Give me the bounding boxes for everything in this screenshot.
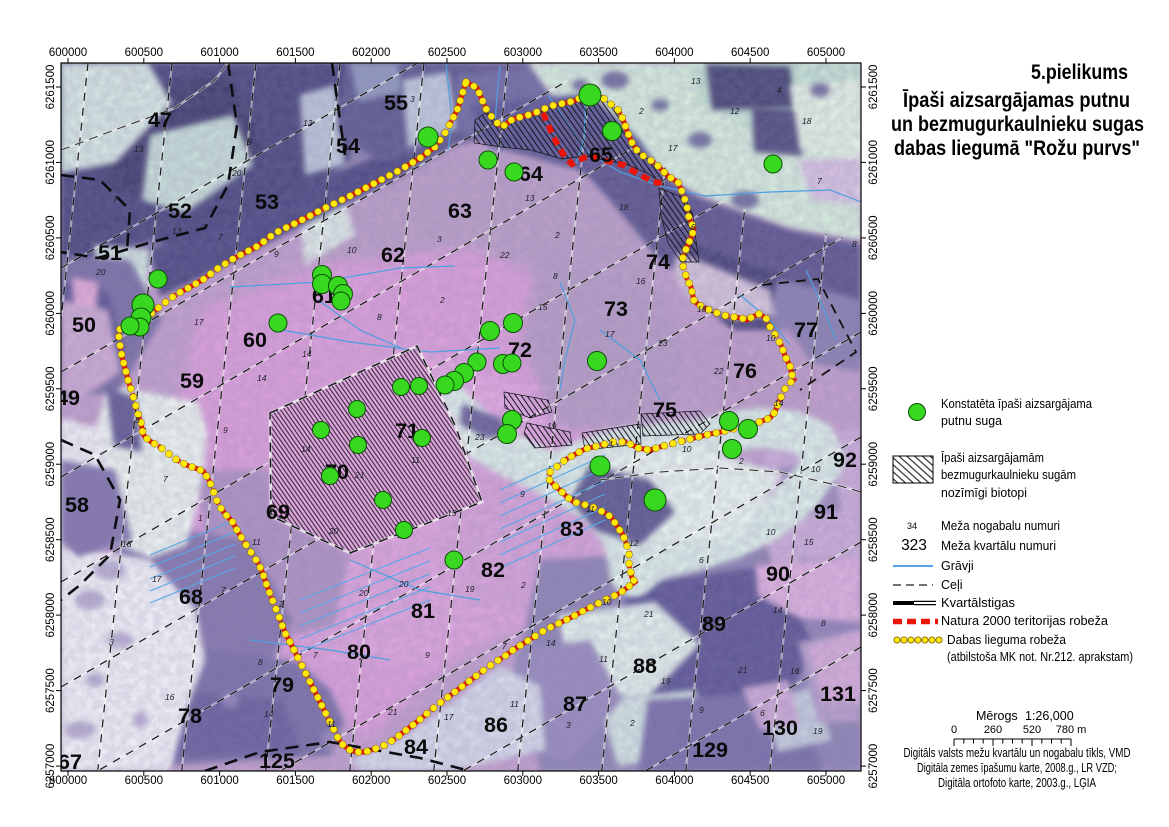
svg-text:89: 89	[702, 612, 726, 636]
svg-text:55: 55	[384, 91, 408, 115]
svg-text:2: 2	[439, 295, 445, 305]
svg-text:10: 10	[602, 597, 612, 607]
svg-text:7: 7	[218, 232, 223, 242]
svg-text:7: 7	[221, 585, 226, 595]
svg-text:76: 76	[733, 359, 757, 383]
svg-text:Dabas lieguma robeža: Dabas lieguma robeža	[947, 633, 1066, 647]
svg-text:600500: 600500	[125, 47, 163, 59]
svg-text:73: 73	[604, 297, 628, 321]
svg-text:603000: 603000	[504, 47, 542, 59]
svg-text:11: 11	[411, 455, 420, 465]
svg-text:91: 91	[814, 500, 838, 524]
svg-text:83: 83	[560, 517, 584, 541]
svg-text:6259000: 6259000	[868, 442, 880, 487]
svg-text:8: 8	[258, 657, 263, 667]
svg-text:23: 23	[474, 432, 485, 442]
svg-text:8: 8	[135, 415, 140, 425]
svg-text:6260500: 6260500	[45, 216, 57, 261]
svg-text:20: 20	[95, 267, 106, 277]
svg-text:8: 8	[553, 271, 558, 281]
svg-text:90: 90	[766, 562, 790, 586]
svg-text:10: 10	[811, 464, 821, 474]
svg-text:8: 8	[821, 618, 826, 628]
svg-text:11: 11	[586, 504, 595, 514]
svg-text:2: 2	[629, 718, 635, 728]
svg-text:14: 14	[302, 349, 312, 359]
svg-text:601000: 601000	[200, 47, 238, 59]
svg-text:20: 20	[328, 526, 339, 536]
svg-text:21: 21	[643, 609, 654, 619]
svg-text:604500: 604500	[731, 47, 769, 59]
svg-text:17: 17	[152, 574, 162, 584]
svg-text:9: 9	[699, 705, 704, 715]
svg-text:putnu suga: putnu suga	[941, 414, 1002, 428]
svg-text:11: 11	[252, 537, 261, 547]
svg-text:21: 21	[387, 707, 398, 717]
svg-text:603000: 603000	[504, 775, 542, 787]
svg-text:780 m: 780 m	[1056, 724, 1087, 736]
svg-text:18: 18	[619, 202, 629, 212]
svg-text:68: 68	[179, 585, 203, 609]
svg-text:6261000: 6261000	[868, 140, 880, 185]
svg-text:86: 86	[484, 713, 508, 737]
svg-text:130: 130	[762, 716, 798, 740]
svg-text:19: 19	[547, 421, 557, 431]
svg-text:11: 11	[599, 654, 608, 664]
svg-text:605000: 605000	[807, 47, 845, 59]
svg-text:6258000: 6258000	[45, 593, 57, 638]
svg-text:7: 7	[313, 650, 318, 660]
svg-text:69: 69	[266, 500, 290, 524]
svg-text:20: 20	[398, 579, 409, 589]
svg-text:13: 13	[134, 144, 144, 154]
svg-text:600500: 600500	[125, 775, 163, 787]
svg-text:520: 520	[1023, 724, 1041, 736]
svg-text:51: 51	[98, 241, 122, 265]
svg-text:601500: 601500	[276, 47, 314, 59]
svg-text:600000: 600000	[49, 47, 87, 59]
svg-text:34: 34	[907, 521, 917, 531]
svg-text:604000: 604000	[655, 47, 693, 59]
svg-text:15: 15	[447, 508, 457, 518]
svg-text:6259000: 6259000	[45, 442, 57, 487]
svg-text:79: 79	[270, 673, 294, 697]
svg-text:6258500: 6258500	[45, 517, 57, 562]
svg-text:13: 13	[525, 193, 535, 203]
svg-text:6257000: 6257000	[45, 744, 57, 789]
svg-text:2: 2	[738, 456, 744, 466]
svg-text:77: 77	[794, 318, 818, 342]
svg-text:Ceļi: Ceļi	[941, 578, 963, 592]
svg-text:Grāvji: Grāvji	[941, 559, 974, 573]
svg-text:54: 54	[336, 134, 360, 158]
svg-text:131: 131	[820, 682, 856, 706]
svg-text:2: 2	[278, 599, 284, 609]
svg-text:9: 9	[425, 650, 430, 660]
svg-text:23: 23	[657, 338, 668, 348]
svg-text:52: 52	[168, 199, 192, 223]
svg-text:3: 3	[109, 637, 114, 647]
svg-text:19: 19	[813, 726, 823, 736]
svg-text:1: 1	[198, 513, 203, 523]
svg-text:5.pielikums: 5.pielikums	[1031, 60, 1128, 84]
svg-text:17: 17	[444, 712, 454, 722]
svg-text:6258500: 6258500	[868, 517, 880, 562]
svg-text:Digitāla zemes īpašumu karte,: Digitāla zemes īpašumu karte, 2008.g., L…	[917, 761, 1117, 775]
svg-text:323: 323	[901, 537, 927, 554]
svg-text:20: 20	[231, 168, 242, 178]
svg-text:20: 20	[358, 588, 369, 598]
svg-text:603500: 603500	[579, 775, 617, 787]
svg-text:13: 13	[172, 226, 182, 236]
svg-text:125: 125	[259, 749, 295, 773]
svg-text:dabas liegumā "Rožu purvs": dabas liegumā "Rožu purvs"	[894, 136, 1140, 160]
svg-text:16: 16	[165, 692, 175, 702]
svg-text:15: 15	[538, 302, 548, 312]
svg-text:Meža nogabalu numuri: Meža nogabalu numuri	[941, 519, 1060, 533]
svg-text:84: 84	[404, 735, 428, 759]
svg-text:un bezmugurkaulnieku sugas: un bezmugurkaulnieku sugas	[891, 112, 1144, 136]
svg-text:7: 7	[113, 194, 118, 204]
svg-text:17: 17	[194, 317, 204, 327]
svg-text:21: 21	[737, 665, 748, 675]
svg-text:6257500: 6257500	[45, 668, 57, 713]
svg-text:22: 22	[499, 250, 510, 260]
svg-text:6261500: 6261500	[45, 65, 57, 110]
svg-text:7: 7	[163, 474, 168, 484]
svg-text:Īpaši aizsargājamām: Īpaši aizsargājamām	[941, 451, 1044, 465]
svg-text:Īpaši aizsargājamas putnu: Īpaši aizsargājamas putnu	[902, 88, 1130, 112]
svg-text:0: 0	[951, 724, 957, 736]
svg-text:6258000: 6258000	[868, 593, 880, 638]
svg-text:603500: 603500	[579, 47, 617, 59]
svg-text:14: 14	[257, 373, 267, 383]
svg-text:18: 18	[802, 116, 812, 126]
svg-text:75: 75	[653, 398, 677, 422]
svg-text:6259500: 6259500	[868, 366, 880, 411]
svg-text:16: 16	[636, 276, 646, 286]
svg-text:60: 60	[243, 328, 267, 352]
svg-text:6261500: 6261500	[868, 65, 880, 110]
svg-text:6: 6	[699, 555, 704, 565]
svg-text:82: 82	[481, 558, 505, 582]
svg-text:7: 7	[817, 176, 822, 186]
svg-text:92: 92	[833, 448, 857, 472]
svg-text:9: 9	[274, 249, 279, 259]
svg-text:2: 2	[520, 580, 526, 590]
svg-text:Natura 2000 teritorijas robeža: Natura 2000 teritorijas robeža	[941, 614, 1108, 628]
svg-text:63: 63	[448, 199, 472, 223]
svg-text:13: 13	[303, 118, 313, 128]
svg-text:80: 80	[347, 640, 371, 664]
svg-text:604000: 604000	[655, 775, 693, 787]
svg-text:6260000: 6260000	[45, 291, 57, 336]
svg-text:6257000: 6257000	[868, 744, 880, 789]
svg-text:21: 21	[354, 470, 365, 480]
svg-text:7: 7	[502, 641, 507, 651]
svg-text:18: 18	[697, 304, 707, 314]
svg-text:Mērogs: Mērogs	[976, 709, 1018, 723]
svg-text:6: 6	[691, 222, 696, 232]
svg-text:6260500: 6260500	[868, 216, 880, 261]
svg-text:47: 47	[148, 108, 172, 132]
svg-text:81: 81	[411, 599, 435, 623]
svg-text:Digitāls valsts mežu kvartālu: Digitāls valsts mežu kvartālu un nogabal…	[904, 746, 1131, 760]
svg-text:15: 15	[804, 537, 814, 547]
svg-text:602500: 602500	[428, 775, 466, 787]
svg-text:129: 129	[692, 738, 728, 762]
svg-text:Kvartālstigas: Kvartālstigas	[941, 596, 1015, 610]
svg-text:601500: 601500	[276, 775, 314, 787]
svg-text:2: 2	[554, 230, 560, 240]
svg-text:53: 53	[255, 190, 279, 214]
svg-text:12: 12	[629, 538, 639, 548]
svg-text:11: 11	[510, 699, 519, 709]
svg-text:14: 14	[546, 638, 556, 648]
svg-text:8: 8	[247, 137, 252, 147]
svg-text:4: 4	[608, 439, 613, 449]
svg-text:22: 22	[713, 366, 724, 376]
svg-text:Meža kvartālu numuri: Meža kvartālu numuri	[941, 539, 1056, 553]
svg-text:6261000: 6261000	[45, 140, 57, 185]
svg-text:62: 62	[381, 243, 405, 267]
svg-text:602500: 602500	[428, 47, 466, 59]
svg-text:50: 50	[72, 313, 96, 337]
svg-text:3: 3	[566, 720, 571, 730]
svg-text:58: 58	[65, 493, 89, 517]
svg-text:10: 10	[766, 333, 776, 343]
svg-text:260: 260	[984, 724, 1002, 736]
svg-text:nozīmīgi biotopi: nozīmīgi biotopi	[941, 486, 1027, 500]
svg-text:3: 3	[410, 94, 415, 104]
svg-text:14: 14	[301, 444, 311, 454]
svg-text:bezmugurkaulnieku sugām: bezmugurkaulnieku sugām	[941, 468, 1076, 482]
svg-text:601000: 601000	[200, 775, 238, 787]
svg-text:604500: 604500	[731, 775, 769, 787]
svg-text:602000: 602000	[352, 775, 390, 787]
svg-text:59: 59	[180, 369, 204, 393]
svg-text:Digitāla ortofoto karte, 2003.: Digitāla ortofoto karte, 2003.g., LĢIA	[938, 776, 1097, 790]
svg-text:16: 16	[790, 666, 800, 676]
svg-text:6259500: 6259500	[45, 366, 57, 411]
svg-text:605000: 605000	[807, 775, 845, 787]
svg-text:10: 10	[347, 245, 357, 255]
svg-text:19: 19	[465, 584, 475, 594]
svg-text:602000: 602000	[352, 47, 390, 59]
svg-text:10: 10	[682, 444, 692, 454]
svg-text:65: 65	[589, 143, 613, 167]
svg-text:17: 17	[605, 329, 615, 339]
svg-text:87: 87	[563, 692, 587, 716]
svg-text:17: 17	[668, 143, 678, 153]
svg-text:(atbilstoša MK not. Nr.212. ap: (atbilstoša MK not. Nr.212. aprakstam)	[947, 650, 1133, 664]
svg-text:3: 3	[437, 234, 442, 244]
svg-text:14: 14	[774, 398, 784, 408]
svg-text:9: 9	[223, 425, 228, 435]
svg-text:2: 2	[638, 106, 644, 116]
svg-text:88: 88	[633, 654, 657, 678]
svg-text:6257500: 6257500	[868, 668, 880, 713]
svg-text:8: 8	[852, 239, 857, 249]
svg-text:8: 8	[377, 312, 382, 322]
svg-text:18: 18	[122, 539, 132, 549]
svg-text:9: 9	[520, 489, 525, 499]
svg-text:78: 78	[178, 704, 202, 728]
svg-text:6260000: 6260000	[868, 291, 880, 336]
svg-text:11: 11	[327, 719, 336, 729]
svg-text:13: 13	[691, 76, 701, 86]
svg-text:Konstatēta īpaši aizsargājama: Konstatēta īpaši aizsargājama	[941, 397, 1092, 411]
svg-text:74: 74	[646, 250, 670, 274]
svg-text:14: 14	[773, 605, 783, 615]
svg-text:4: 4	[777, 85, 782, 95]
svg-text:12: 12	[730, 106, 740, 116]
svg-text:14: 14	[264, 709, 274, 719]
svg-text:19: 19	[661, 676, 671, 686]
svg-text:10: 10	[766, 527, 776, 537]
svg-text:1:26,000: 1:26,000	[1025, 709, 1074, 723]
